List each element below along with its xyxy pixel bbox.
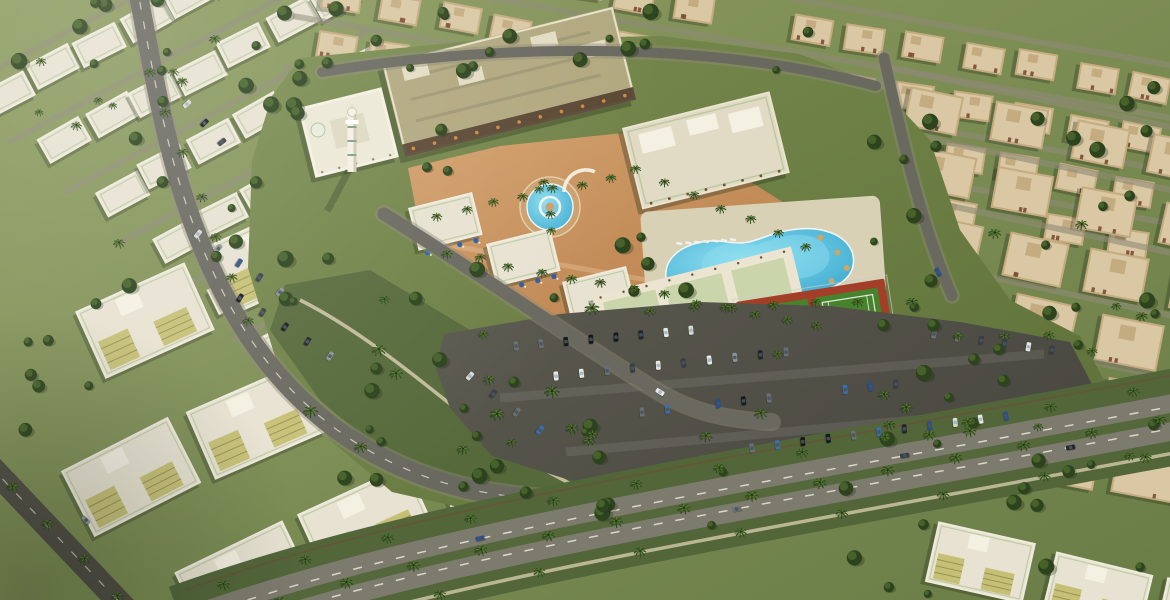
palm-crown <box>345 581 347 583</box>
car-glass <box>1069 445 1073 449</box>
car-glass <box>894 382 898 386</box>
car-glass <box>801 440 805 444</box>
tree-highlight <box>868 136 877 145</box>
tree-highlight <box>642 258 650 266</box>
palm-crown <box>1003 334 1005 336</box>
palm-crown <box>1023 444 1025 446</box>
car-glass <box>733 356 737 360</box>
palm-crown <box>928 433 930 435</box>
palm-crown <box>751 494 753 496</box>
palm-crown <box>1132 390 1134 392</box>
villa-door <box>861 47 865 52</box>
palm-crown <box>857 301 859 303</box>
car-glass <box>826 437 830 441</box>
roof-terrace <box>1015 176 1031 191</box>
tree-highlight <box>1032 454 1040 462</box>
tree-highlight <box>1136 563 1142 569</box>
car-glass <box>640 410 644 414</box>
tree-highlight <box>593 451 601 459</box>
palm-crown <box>777 353 779 355</box>
tree-highlight <box>1148 82 1156 90</box>
tree-highlight <box>1141 126 1148 133</box>
palm-crown <box>887 469 889 471</box>
car-glass <box>639 333 643 337</box>
palm-crown <box>1091 350 1093 352</box>
tree-highlight <box>1031 500 1039 508</box>
car <box>901 424 907 434</box>
tree-highlight <box>1072 303 1077 308</box>
tree-highlight <box>473 469 482 478</box>
tree-highlight <box>848 551 857 560</box>
aerial-community-render <box>0 0 1170 600</box>
tree-highlight <box>1042 241 1047 246</box>
car-glass <box>554 374 558 378</box>
tree-highlight <box>928 320 935 327</box>
palm-crown <box>1048 334 1050 336</box>
palm-crown <box>615 520 617 522</box>
palm-crown <box>693 194 695 196</box>
roof-terrace <box>910 36 921 46</box>
palm-crown <box>412 564 414 566</box>
tree-highlight <box>597 500 605 508</box>
roof-terrace <box>1118 324 1136 341</box>
palm-crown <box>815 301 817 303</box>
tree-highlight <box>871 238 875 242</box>
tree-highlight <box>584 420 593 429</box>
palm-crown <box>911 300 913 302</box>
car <box>613 332 619 342</box>
car <box>552 371 558 381</box>
palm-crown <box>469 517 471 519</box>
tree-highlight <box>919 520 925 526</box>
tree-highlight <box>924 590 929 595</box>
car <box>757 350 763 360</box>
car-glass <box>775 443 779 447</box>
palm-crown <box>683 507 685 509</box>
car-glass <box>656 364 660 368</box>
palm-crown <box>649 310 651 312</box>
palm-crown <box>511 441 513 443</box>
tree-highlight <box>884 583 890 589</box>
palm-crown <box>905 406 907 408</box>
car-glass <box>750 446 754 450</box>
palm-crown <box>816 324 818 326</box>
palm-crown <box>731 307 733 309</box>
palm-crown <box>633 287 635 289</box>
tree-highlight <box>1031 113 1039 121</box>
palm-crown <box>1081 223 1083 225</box>
tree-highlight <box>840 482 848 490</box>
tree-highlight <box>679 283 688 292</box>
car <box>740 396 747 406</box>
palm-crown <box>883 393 885 395</box>
tree-highlight <box>1043 307 1051 315</box>
roof-terrace <box>969 97 980 106</box>
car-glass <box>869 385 873 389</box>
palm-crown <box>1129 454 1131 456</box>
palm-crown <box>720 207 722 209</box>
car-glass <box>707 358 711 362</box>
car <box>639 407 645 417</box>
tree-highlight <box>998 375 1005 382</box>
palm-crown <box>942 493 944 495</box>
car-glass <box>767 396 771 400</box>
car-glass <box>843 388 847 392</box>
tree-highlight <box>1151 310 1156 315</box>
tree-highlight <box>925 275 933 283</box>
palm-crown <box>639 550 641 552</box>
car-glass <box>928 424 932 428</box>
car <box>715 399 721 409</box>
tree-highlight <box>1074 341 1080 347</box>
tree-highlight <box>459 482 465 488</box>
palm-crown <box>1091 431 1093 433</box>
tree-highlight <box>994 344 1001 351</box>
car-glass <box>1004 414 1008 418</box>
palm-crown <box>539 570 541 572</box>
tree-highlight <box>917 366 927 376</box>
palm-crown <box>571 427 573 429</box>
palm-crown <box>693 305 695 307</box>
palm-crown <box>547 534 549 536</box>
palm-crown <box>664 181 666 183</box>
palm-crown <box>1115 305 1117 307</box>
tree-highlight <box>582 429 587 434</box>
car-glass <box>665 407 669 411</box>
palm-crown <box>772 303 774 305</box>
palm-crown <box>724 306 726 308</box>
palm-crown <box>841 512 843 514</box>
car-glass <box>903 427 907 431</box>
tree-highlight <box>708 521 713 526</box>
palm-crown <box>819 481 821 483</box>
tree-highlight <box>521 487 528 494</box>
palm-crown <box>663 292 665 294</box>
car <box>687 326 693 336</box>
tree-highlight <box>491 460 499 468</box>
car-glass <box>589 338 593 342</box>
tree-highlight <box>1090 143 1099 152</box>
palm-crown <box>884 436 886 438</box>
villa-door <box>873 48 877 53</box>
tree-highlight <box>803 27 809 33</box>
tree-highlight <box>900 155 905 160</box>
car-glass <box>580 372 584 376</box>
palm-crown <box>439 593 441 595</box>
palm-crown <box>888 423 890 425</box>
palm-crown <box>967 421 969 423</box>
car <box>637 330 643 340</box>
tree-highlight <box>1125 191 1131 197</box>
palm-crown <box>591 433 593 435</box>
car-glass <box>1003 342 1007 346</box>
car-glass <box>682 361 686 365</box>
car <box>578 369 585 379</box>
car-glass <box>903 454 907 458</box>
tree-highlight <box>931 141 938 148</box>
car-glass <box>631 366 635 370</box>
palm-crown <box>777 232 779 234</box>
palm-crown <box>552 499 554 501</box>
car <box>655 361 661 371</box>
tree-highlight <box>1087 461 1092 466</box>
palm-crown <box>957 335 959 337</box>
palm-crown <box>801 451 803 453</box>
palm-crown <box>705 435 707 437</box>
render-canvas <box>0 0 1170 600</box>
palm-crown <box>969 430 971 432</box>
palm-crown <box>754 313 756 315</box>
palm-crown <box>750 217 752 219</box>
car-glass <box>979 339 983 343</box>
car <box>799 437 805 447</box>
palm-crown <box>1141 315 1143 317</box>
palm-crown <box>955 456 957 458</box>
roof-terrace <box>1027 54 1038 64</box>
car-glass <box>1050 348 1054 352</box>
palm-crown <box>740 531 742 533</box>
tree-highlight <box>1007 496 1016 505</box>
car-glass <box>852 433 856 437</box>
palm-crown <box>551 389 554 392</box>
palm-crown <box>1037 425 1039 427</box>
car <box>893 379 899 389</box>
palm-crown <box>1050 405 1052 407</box>
palm-crown <box>387 536 389 538</box>
car <box>731 353 737 363</box>
tree-highlight <box>907 209 916 218</box>
car-glass <box>605 369 609 373</box>
car <box>824 434 831 444</box>
car-glass <box>1026 345 1030 349</box>
car-glass <box>932 332 936 336</box>
car-glass <box>759 353 763 357</box>
car-glass <box>735 507 739 511</box>
palm-crown <box>1158 419 1160 421</box>
villa-door <box>1130 251 1134 256</box>
car <box>783 347 789 357</box>
tree-highlight <box>773 66 778 71</box>
car-glass <box>716 402 720 406</box>
tree-highlight <box>1063 466 1070 473</box>
tree-highlight <box>1120 97 1129 106</box>
tree-highlight <box>1099 202 1105 208</box>
tree-highlight <box>1019 483 1026 490</box>
roof-terrace <box>862 30 873 39</box>
roof-terrace <box>1006 109 1021 123</box>
car <box>765 393 772 403</box>
car <box>629 363 635 373</box>
tree-highlight <box>637 233 642 238</box>
palm-crown <box>994 232 996 234</box>
roof-terrace <box>1109 258 1126 274</box>
palm-crown <box>635 482 637 484</box>
tree-highlight <box>1140 293 1149 302</box>
palm-crown <box>786 318 788 320</box>
tree-highlight <box>969 354 976 361</box>
car-glass <box>664 331 668 335</box>
palm-crown <box>1145 456 1147 458</box>
palm-crown <box>760 412 762 414</box>
roof-terrace <box>1091 68 1102 78</box>
palm-crown <box>1043 475 1045 477</box>
tree-highlight <box>878 320 885 327</box>
car-glass <box>689 328 693 332</box>
car-glass <box>877 430 881 434</box>
palm-crown <box>718 467 720 469</box>
car-glass <box>784 350 788 354</box>
car-glass <box>953 421 957 425</box>
villa-door <box>966 113 970 118</box>
tree-highlight <box>934 440 939 445</box>
tree-highlight <box>945 393 951 399</box>
palm-crown <box>805 245 807 247</box>
car <box>588 335 594 345</box>
car <box>952 418 958 428</box>
car-glass <box>742 399 746 403</box>
car-glass <box>614 335 617 338</box>
car-glass <box>979 417 983 421</box>
tree-highlight <box>923 115 932 124</box>
tree-highlight <box>1039 560 1048 569</box>
palm-crown <box>588 439 590 441</box>
tree-highlight <box>1067 132 1076 141</box>
palm-crown <box>480 548 482 550</box>
